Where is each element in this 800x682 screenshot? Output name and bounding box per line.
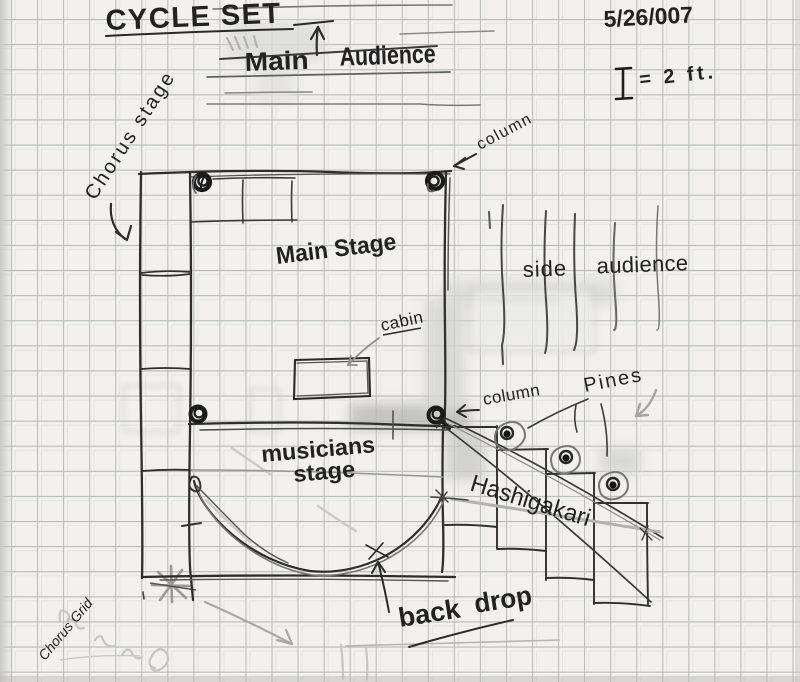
svg-text:Audience: Audience — [339, 38, 436, 71]
svg-text:side: side — [522, 255, 567, 282]
svg-text:5/26/007: 5/26/007 — [603, 1, 694, 32]
svg-text:audience: audience — [596, 250, 689, 278]
svg-text:Main: Main — [244, 45, 309, 77]
svg-text:stage: stage — [292, 456, 356, 487]
